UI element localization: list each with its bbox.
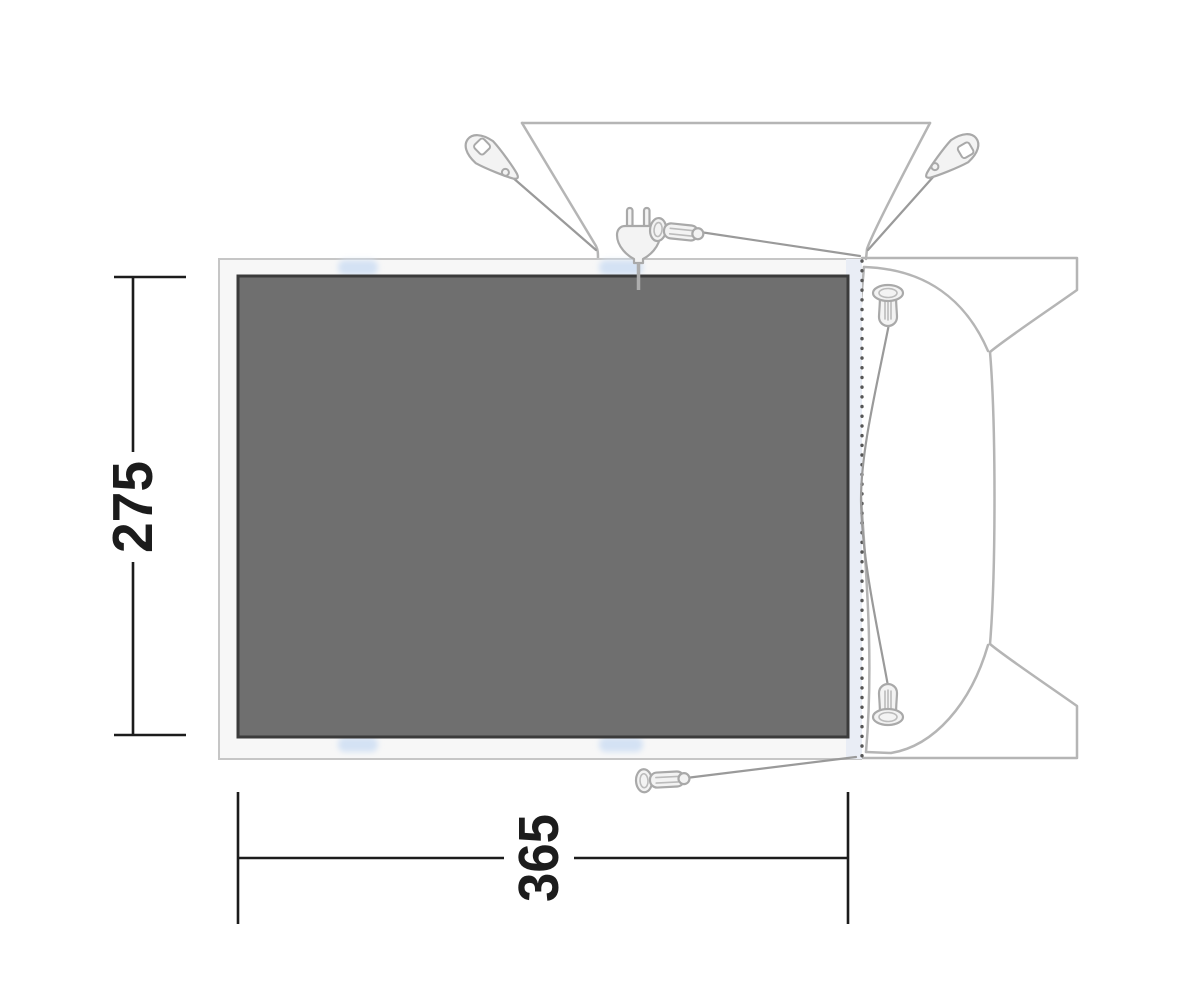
plug-prong — [627, 208, 633, 227]
peg-tip — [692, 228, 704, 240]
canopy-left-edge — [522, 123, 598, 259]
awning-floorplan-diagram: 275 365 — [0, 0, 1200, 988]
height-dimension-label: 275 — [101, 461, 165, 553]
attachment-tab — [338, 260, 378, 275]
tent-peg-icon — [649, 217, 705, 245]
awning-footprint — [218, 258, 862, 760]
peg-tip — [678, 773, 690, 785]
attachment-tab — [599, 737, 643, 752]
vehicle-outline — [857, 258, 1077, 758]
tent-peg-icon — [873, 684, 903, 725]
plug-prong — [644, 208, 650, 227]
tent-peg-icon — [873, 285, 903, 326]
guyline-tensioner-icon — [918, 127, 985, 188]
floor-area — [238, 276, 848, 737]
guyline-left-tensioner — [512, 177, 596, 250]
guyline-top-peg — [700, 232, 860, 256]
vehicle-side-strap — [861, 324, 889, 686]
tensioner-body — [918, 127, 985, 188]
tent-peg-icon — [635, 767, 690, 793]
attachment-tab — [338, 737, 378, 752]
vehicle-centerline — [990, 352, 995, 644]
guyline-right-tensioner — [868, 176, 934, 250]
diagram-canvas: 275 365 — [0, 0, 1200, 988]
guyline-bottom-peg — [686, 757, 856, 778]
peg-head — [873, 709, 903, 725]
width-dimension-label: 365 — [507, 814, 571, 902]
peg-head — [873, 285, 903, 301]
